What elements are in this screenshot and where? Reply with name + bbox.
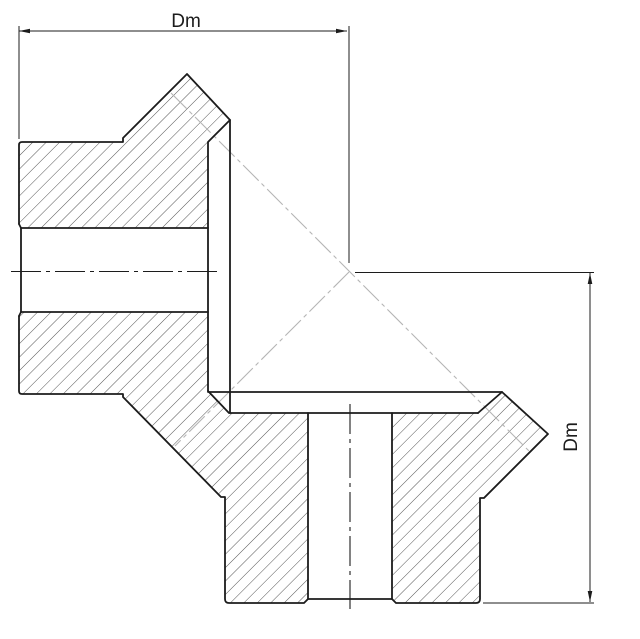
dimension-arrowhead-right-0 xyxy=(588,273,593,284)
left-gear-upper-section xyxy=(19,74,230,228)
dimension-arrowhead-top-1 xyxy=(336,29,347,34)
dimension-arrowhead-top-0 xyxy=(19,29,30,34)
dimension-label-right: Dm xyxy=(561,422,582,452)
bottom-gear-right-section xyxy=(392,392,548,603)
dimension-label-top: Dm xyxy=(171,11,201,32)
bevel-gear-pair-technical-drawing: Dm Dm xyxy=(0,0,640,639)
drawing-canvas: Dm Dm xyxy=(0,0,640,639)
mesh-flank-and-root-line xyxy=(208,391,478,413)
section-hatching xyxy=(19,74,548,603)
dimension-arrowhead-right-1 xyxy=(588,591,593,602)
